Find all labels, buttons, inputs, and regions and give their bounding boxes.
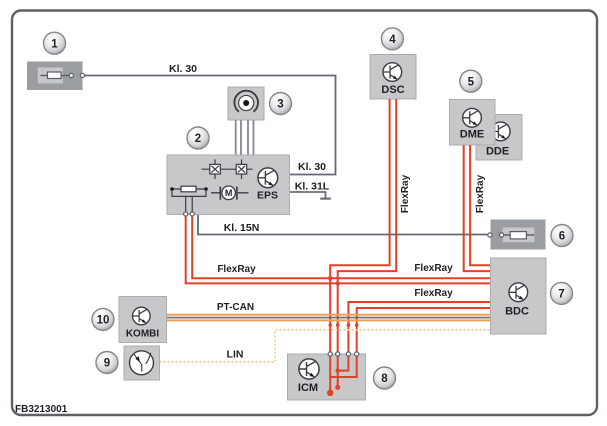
svg-text:DDE: DDE <box>486 145 509 157</box>
svg-text:Kl. 30: Kl. 30 <box>298 161 326 173</box>
svg-text:ICM: ICM <box>298 382 318 394</box>
svg-text:PT-CAN: PT-CAN <box>217 302 254 313</box>
svg-text:FlexRay: FlexRay <box>217 264 256 275</box>
svg-text:Kl. 15N: Kl. 15N <box>224 222 260 234</box>
svg-text:LIN: LIN <box>227 349 244 361</box>
svg-text:FlexRay: FlexRay <box>414 288 453 299</box>
svg-text:10: 10 <box>97 315 110 327</box>
svg-text:8: 8 <box>381 373 388 385</box>
svg-text:FlexRay: FlexRay <box>400 174 411 213</box>
svg-text:2: 2 <box>195 133 201 145</box>
svg-text:FB3213001: FB3213001 <box>15 404 68 415</box>
svg-text:M: M <box>225 188 233 198</box>
svg-text:Kl. 30: Kl. 30 <box>169 63 197 75</box>
svg-text:Kl. 31L: Kl. 31L <box>295 181 330 193</box>
svg-text:FlexRay: FlexRay <box>414 263 453 274</box>
svg-text:EPS: EPS <box>257 189 278 201</box>
svg-text:5: 5 <box>468 76 475 88</box>
svg-text:6: 6 <box>559 231 565 243</box>
svg-text:DSC: DSC <box>381 84 404 96</box>
svg-text:1: 1 <box>51 38 58 50</box>
svg-text:BDC: BDC <box>505 306 529 318</box>
svg-text:9: 9 <box>104 358 110 370</box>
svg-text:FlexRay: FlexRay <box>475 174 486 213</box>
svg-text:DME: DME <box>460 129 484 141</box>
svg-text:KOMBI: KOMBI <box>126 329 160 340</box>
svg-text:4: 4 <box>389 34 396 46</box>
svg-text:3: 3 <box>277 99 283 111</box>
svg-text:7: 7 <box>558 289 564 301</box>
